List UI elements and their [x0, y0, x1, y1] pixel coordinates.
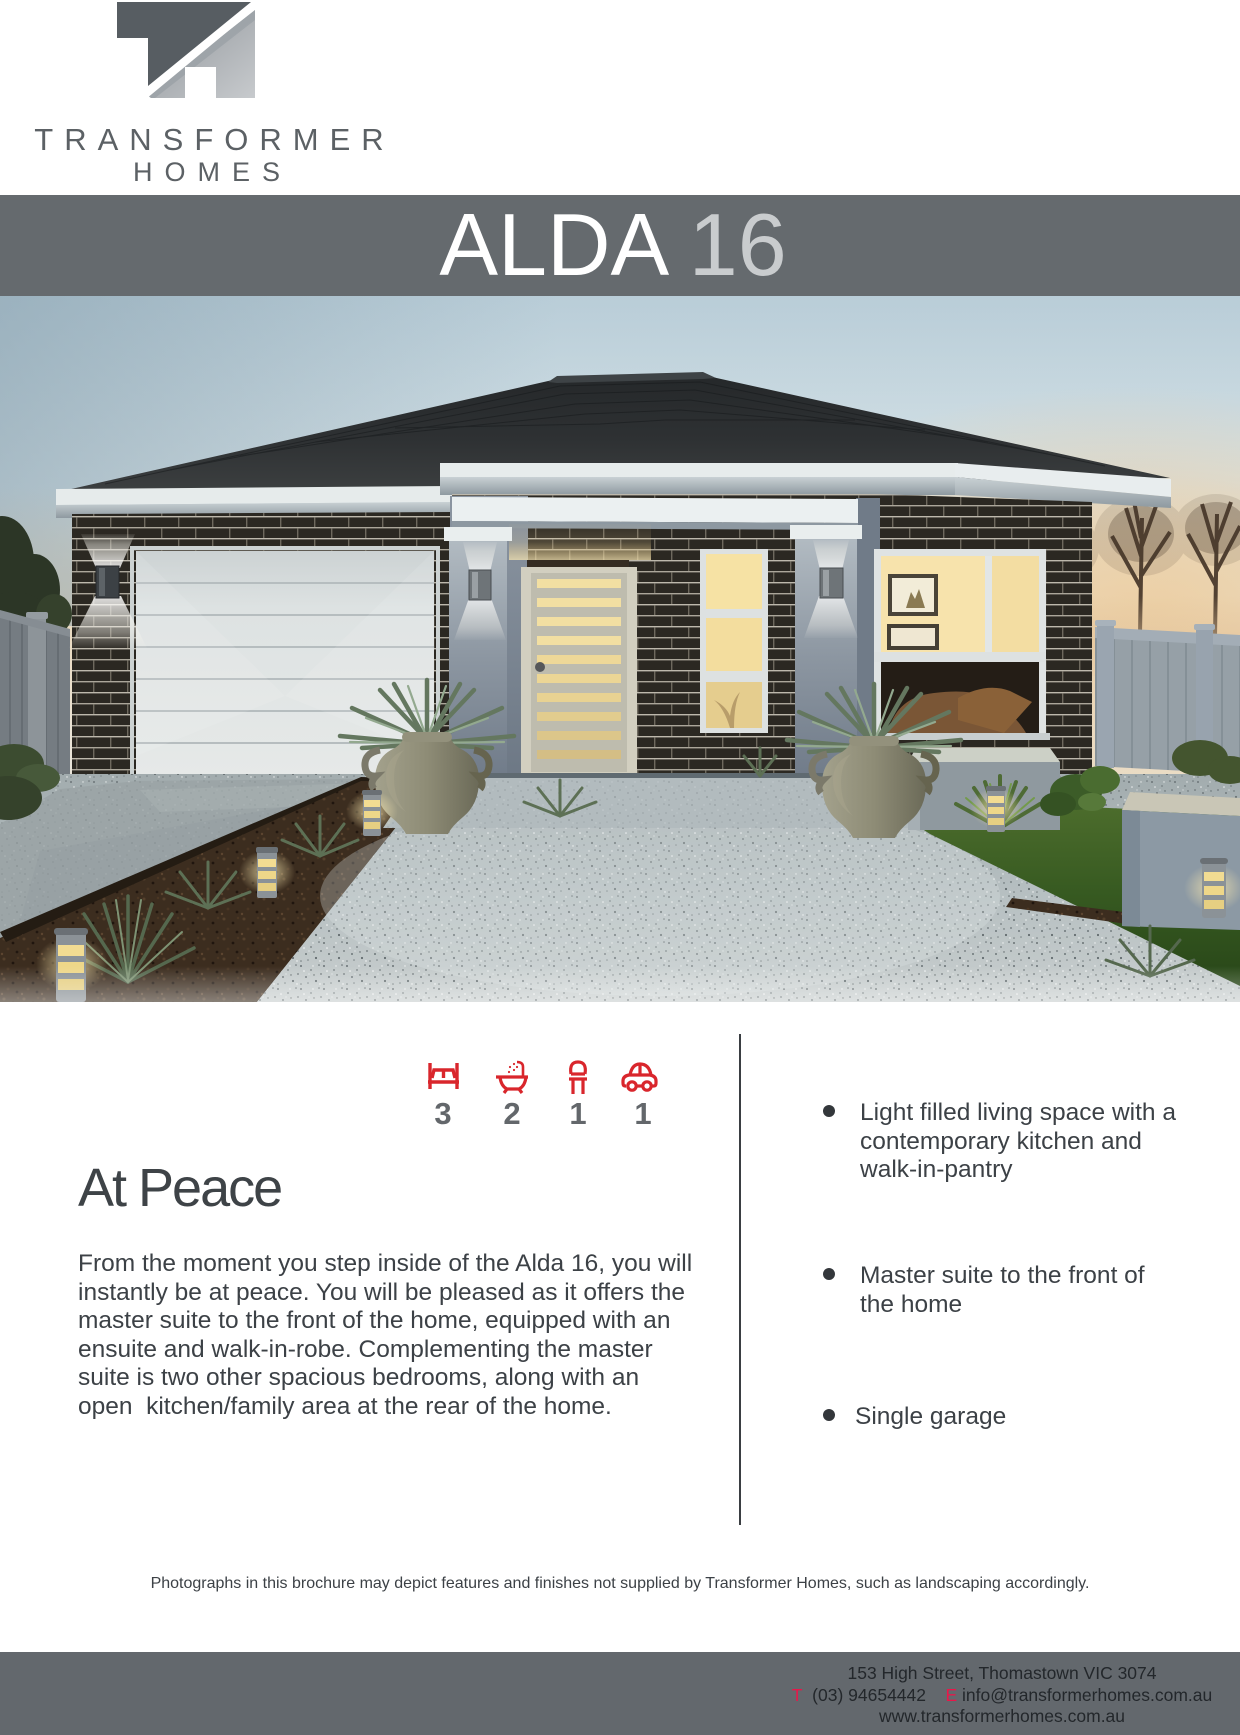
svg-text:1: 1	[634, 1096, 651, 1128]
svg-text:2: 2	[503, 1096, 520, 1128]
svg-text:3: 3	[434, 1096, 451, 1128]
svg-text:1: 1	[569, 1096, 586, 1128]
